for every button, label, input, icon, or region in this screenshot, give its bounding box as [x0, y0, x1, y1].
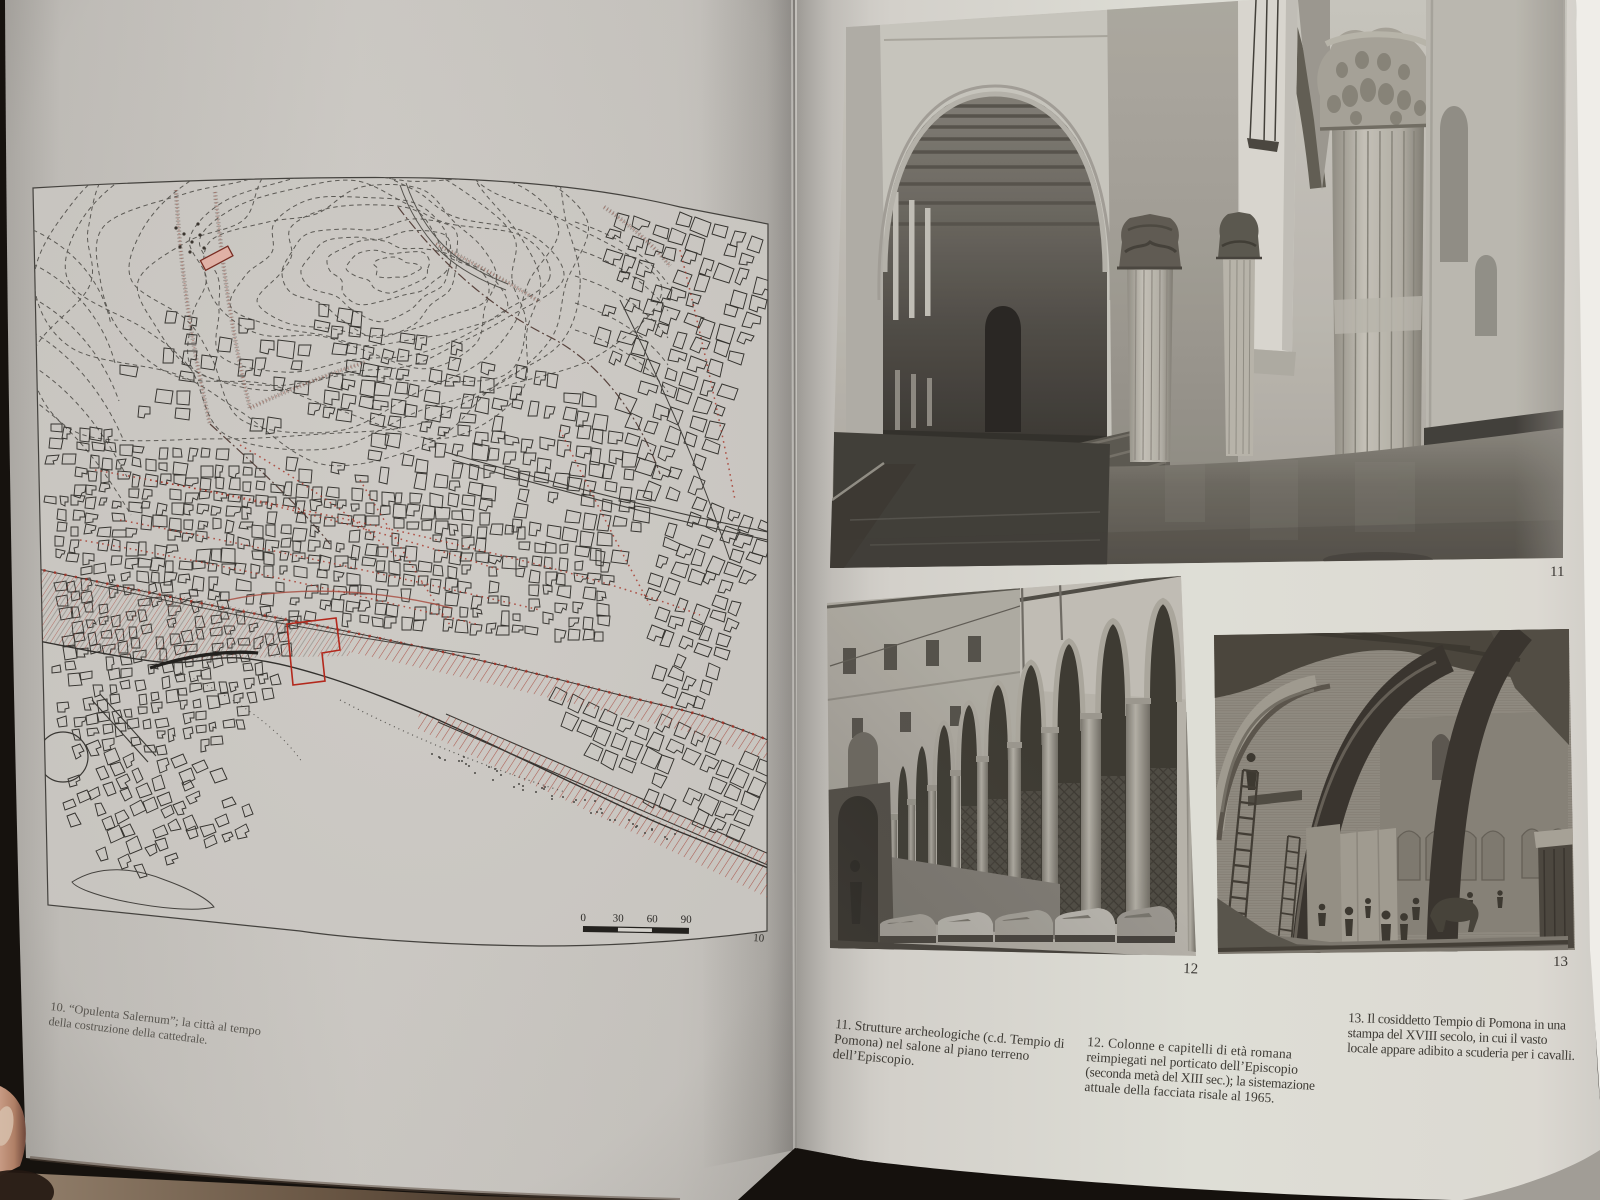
svg-text:13: 13: [1553, 954, 1568, 970]
svg-text:11: 11: [1550, 564, 1564, 580]
svg-text:12: 12: [1183, 961, 1199, 978]
